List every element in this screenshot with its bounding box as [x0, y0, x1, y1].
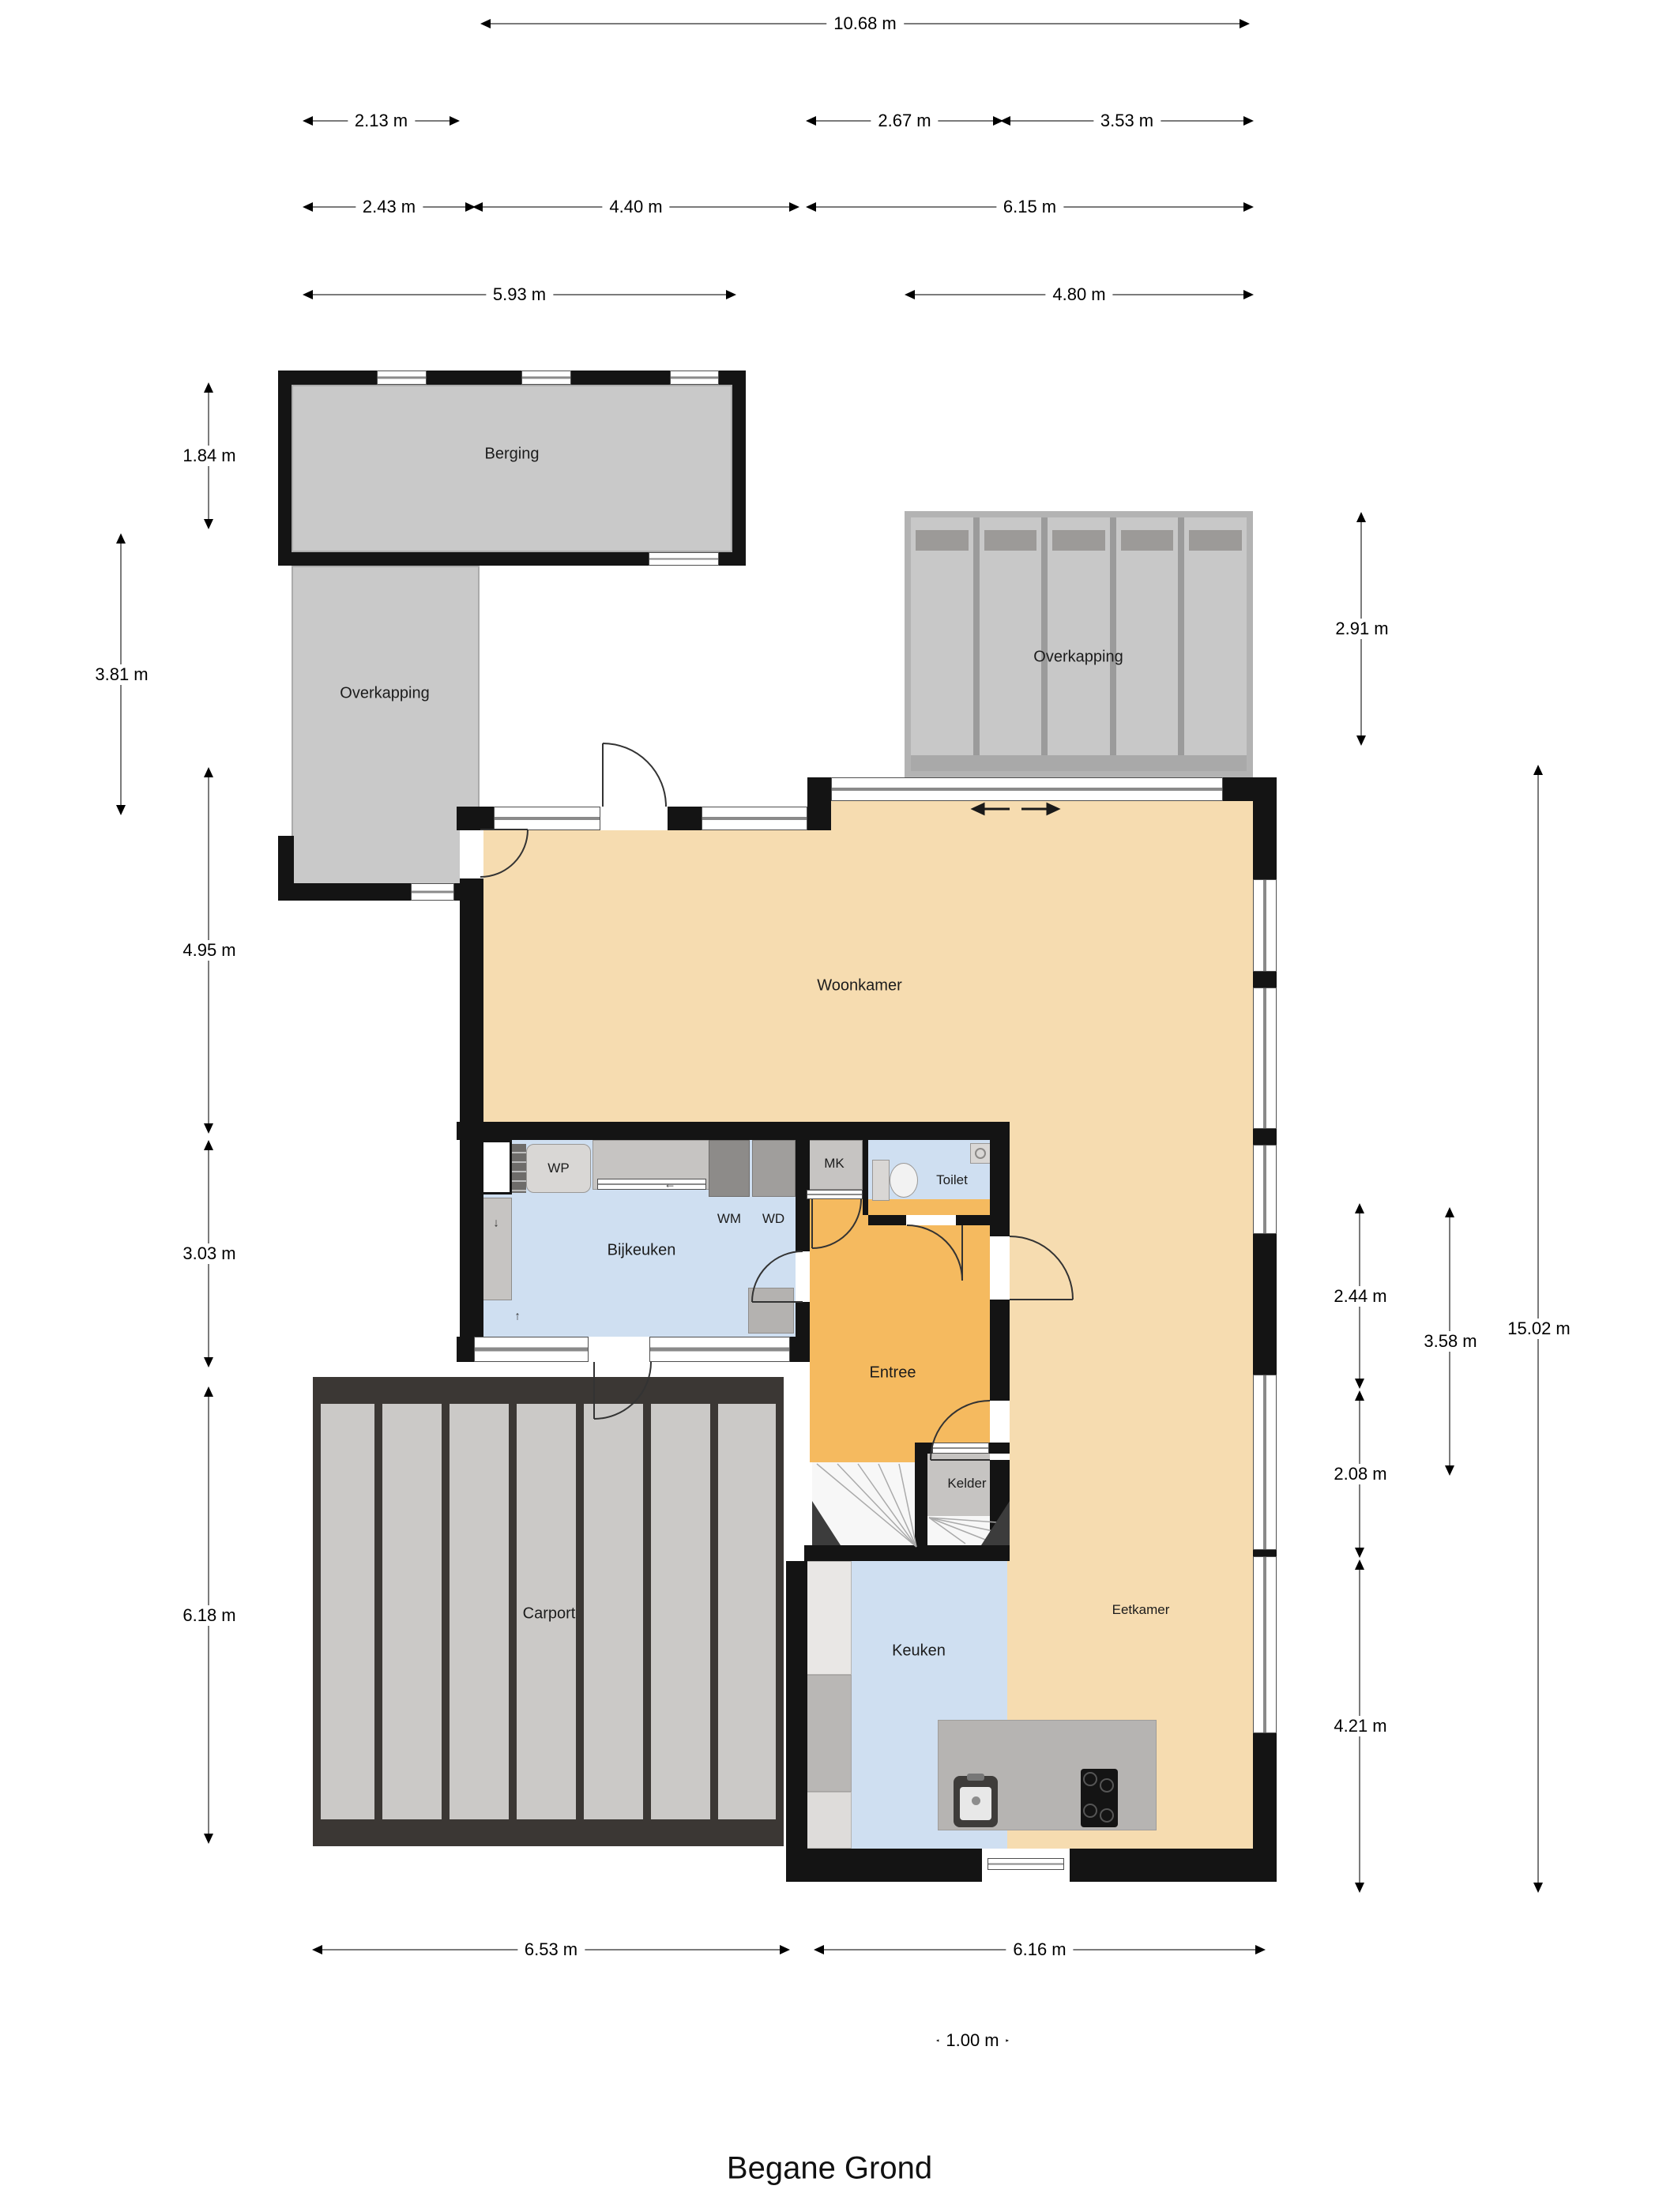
canopy-slat-bar — [984, 530, 1037, 551]
canopy-bottom-edge — [911, 755, 1247, 771]
window — [702, 807, 807, 830]
room-label-berging: Berging — [485, 446, 540, 464]
carport-post — [509, 1404, 517, 1819]
tall-cabinet — [479, 1198, 512, 1300]
wall-segment — [719, 371, 746, 385]
kitchen-counter — [806, 1675, 852, 1792]
carport-post — [374, 1404, 382, 1819]
wall-segment — [278, 552, 649, 566]
wall-segment — [1223, 777, 1277, 801]
carport-post — [576, 1404, 584, 1819]
canopy-slat — [1184, 517, 1247, 771]
door-opening — [600, 807, 668, 830]
dimension: 3.53 m — [1002, 120, 1252, 122]
canopy-slat — [1048, 517, 1110, 771]
wall-segment — [457, 1337, 474, 1362]
wall-segment — [807, 777, 831, 830]
wall-segment — [990, 1140, 1010, 1236]
window — [649, 1337, 790, 1362]
cooktop — [1081, 1769, 1118, 1827]
wall-segment — [1253, 972, 1277, 987]
bijkeuken-side-appliance — [748, 1288, 794, 1334]
kitchen-counter — [806, 1561, 852, 1675]
dimension: 6.15 m — [807, 206, 1252, 208]
basin-icon — [975, 1148, 986, 1159]
wall-segment — [804, 1545, 1010, 1561]
room-label-bijkeuken: Bijkeuken — [608, 1242, 676, 1260]
wall-segment — [1253, 801, 1277, 879]
carport-edge — [313, 1377, 784, 1404]
appliance-label-wm: WM — [717, 1211, 741, 1227]
heat-pump-grill — [512, 1144, 526, 1193]
carport-post — [710, 1404, 718, 1819]
wall-segment — [915, 1443, 932, 1454]
window — [1253, 1556, 1277, 1733]
faucet — [967, 1774, 984, 1781]
dimension: 3.03 m — [208, 1142, 209, 1366]
wall-segment — [790, 1337, 810, 1362]
carport-edge — [313, 1377, 321, 1846]
wall-segment — [786, 1849, 982, 1882]
room-label-overkapping-left: Overkapping — [340, 685, 429, 703]
room-label-overkapping-right: Overkapping — [1033, 649, 1123, 667]
arrow-up-icon: ↑ — [514, 1310, 521, 1323]
page-title: Begane Grond — [727, 2151, 932, 2187]
wall-segment — [460, 878, 483, 1337]
wall-segment — [427, 371, 521, 385]
wall-segment — [989, 1443, 1010, 1454]
wall-segment — [796, 1302, 810, 1337]
room-label-carport: Carport — [523, 1605, 576, 1623]
wall-segment — [278, 385, 292, 552]
dimension: 3.58 m — [1449, 1209, 1450, 1474]
carport-edge — [313, 1819, 784, 1846]
dimension: 6.53 m — [314, 1949, 788, 1951]
room-label-entree: Entree — [870, 1364, 916, 1382]
window — [474, 1337, 589, 1362]
canopy-slat-bar — [1121, 530, 1174, 551]
canopy-slat — [911, 517, 973, 771]
sink-drain — [972, 1796, 980, 1805]
wall-segment — [457, 807, 494, 830]
canopy-slat — [980, 517, 1042, 771]
window — [1253, 987, 1277, 1129]
wall-segment — [1070, 1849, 1277, 1882]
burner-icon — [1083, 1772, 1097, 1786]
arrow-left-icon: ← — [664, 1178, 676, 1191]
wall-segment — [868, 1215, 906, 1225]
door-opening — [591, 1337, 649, 1362]
window — [411, 883, 454, 901]
dimension-overall-right: 15.02 m — [1537, 766, 1539, 1891]
door-opening — [906, 1215, 956, 1225]
wall-segment — [1253, 1550, 1277, 1556]
window — [670, 371, 719, 385]
arrow-down-icon: ↓ — [493, 1217, 499, 1230]
wall-segment — [915, 1447, 927, 1545]
wall-segment — [1253, 1234, 1277, 1375]
room-label-keuken: Keuken — [892, 1642, 946, 1661]
dimension: 2.13 m — [304, 120, 458, 122]
canopy-slat-bar — [1052, 530, 1105, 551]
window-sliding-door — [831, 777, 1223, 801]
dimension: 4.95 m — [208, 769, 209, 1132]
dimension: 4.21 m — [1359, 1561, 1360, 1891]
canopy-slat-bar — [1189, 530, 1242, 551]
room-label-woonkamer: Woonkamer — [817, 977, 901, 995]
dimension: 6.16 m — [815, 1949, 1264, 1951]
sliding-door-symbol — [987, 1858, 1064, 1870]
toilet-bowl — [890, 1163, 918, 1198]
canopy-slat-bar — [916, 530, 969, 551]
carport-post — [643, 1404, 651, 1819]
wall-segment — [863, 1140, 868, 1215]
window — [1253, 1145, 1277, 1234]
dimension: 1.84 m — [208, 384, 209, 528]
burner-icon — [1100, 1808, 1114, 1823]
dryer — [752, 1140, 796, 1197]
dimension: 2.67 m — [807, 120, 1002, 122]
door-opening — [460, 830, 483, 878]
window — [494, 807, 600, 830]
canopy-slat — [1116, 517, 1179, 771]
appliance-label-wp: WP — [547, 1161, 569, 1176]
counter-drawer — [597, 1179, 706, 1190]
toilet-tank — [872, 1160, 890, 1201]
wall-segment — [732, 385, 746, 552]
wall-segment — [668, 807, 702, 830]
room-label-toilet: Toilet — [936, 1172, 968, 1188]
wall-segment — [278, 371, 377, 385]
carport-edge — [776, 1377, 784, 1846]
dimension: 1.00 m — [938, 2040, 1007, 2041]
window — [1253, 879, 1277, 972]
window — [377, 371, 427, 385]
dimension: 6.18 m — [208, 1388, 209, 1842]
door-arc — [603, 743, 666, 807]
window — [932, 1443, 989, 1454]
door-opening — [990, 1236, 1010, 1300]
dimension: 4.80 m — [906, 294, 1252, 295]
room-berging-floor — [292, 385, 732, 552]
room-label-kelder: Kelder — [947, 1476, 986, 1492]
window — [1253, 1375, 1277, 1550]
sink — [954, 1776, 998, 1827]
wall-segment — [786, 1561, 807, 1849]
staircase — [812, 1462, 916, 1545]
window — [649, 552, 719, 566]
dimension: 5.93 m — [304, 294, 735, 295]
burner-icon — [1083, 1804, 1097, 1818]
dimension: 3.81 m — [120, 535, 122, 814]
dimension: 4.40 m — [474, 206, 798, 208]
dimension: 2.44 m — [1359, 1205, 1360, 1387]
dimension: 2.43 m — [304, 206, 474, 208]
wall-segment — [1253, 1129, 1277, 1145]
room-entree-floor — [810, 1199, 990, 1462]
window — [521, 371, 571, 385]
dimension: 2.08 m — [1359, 1392, 1360, 1556]
threshold — [807, 1190, 863, 1199]
appliance-label-wd: WD — [762, 1211, 784, 1227]
wall-segment — [990, 1300, 1010, 1401]
carport-post — [442, 1404, 450, 1819]
wall-segment — [1253, 1733, 1277, 1853]
door-opening — [796, 1251, 810, 1302]
burner-icon — [1100, 1778, 1114, 1793]
dimension-overall-top: 10.68 m — [482, 23, 1248, 24]
appliance-label-mk: MK — [824, 1156, 845, 1172]
wall-segment — [457, 1122, 1010, 1140]
hand-basin — [970, 1143, 991, 1164]
room-overkapping-left-floor — [292, 566, 480, 895]
wall-segment — [956, 1215, 990, 1225]
kitchen-counter — [806, 1792, 852, 1849]
floorplan-canvas: ↓ ↑ ← Berging Overkapping Overkapping Wo… — [0, 0, 1659, 2212]
dimension: 2.91 m — [1360, 513, 1362, 744]
wall-segment — [719, 552, 746, 566]
washing-machine — [709, 1140, 750, 1197]
room-label-eetkamer: Eetkamer — [1112, 1602, 1170, 1618]
wall-segment — [571, 371, 670, 385]
room-overkapping-right — [905, 511, 1253, 777]
